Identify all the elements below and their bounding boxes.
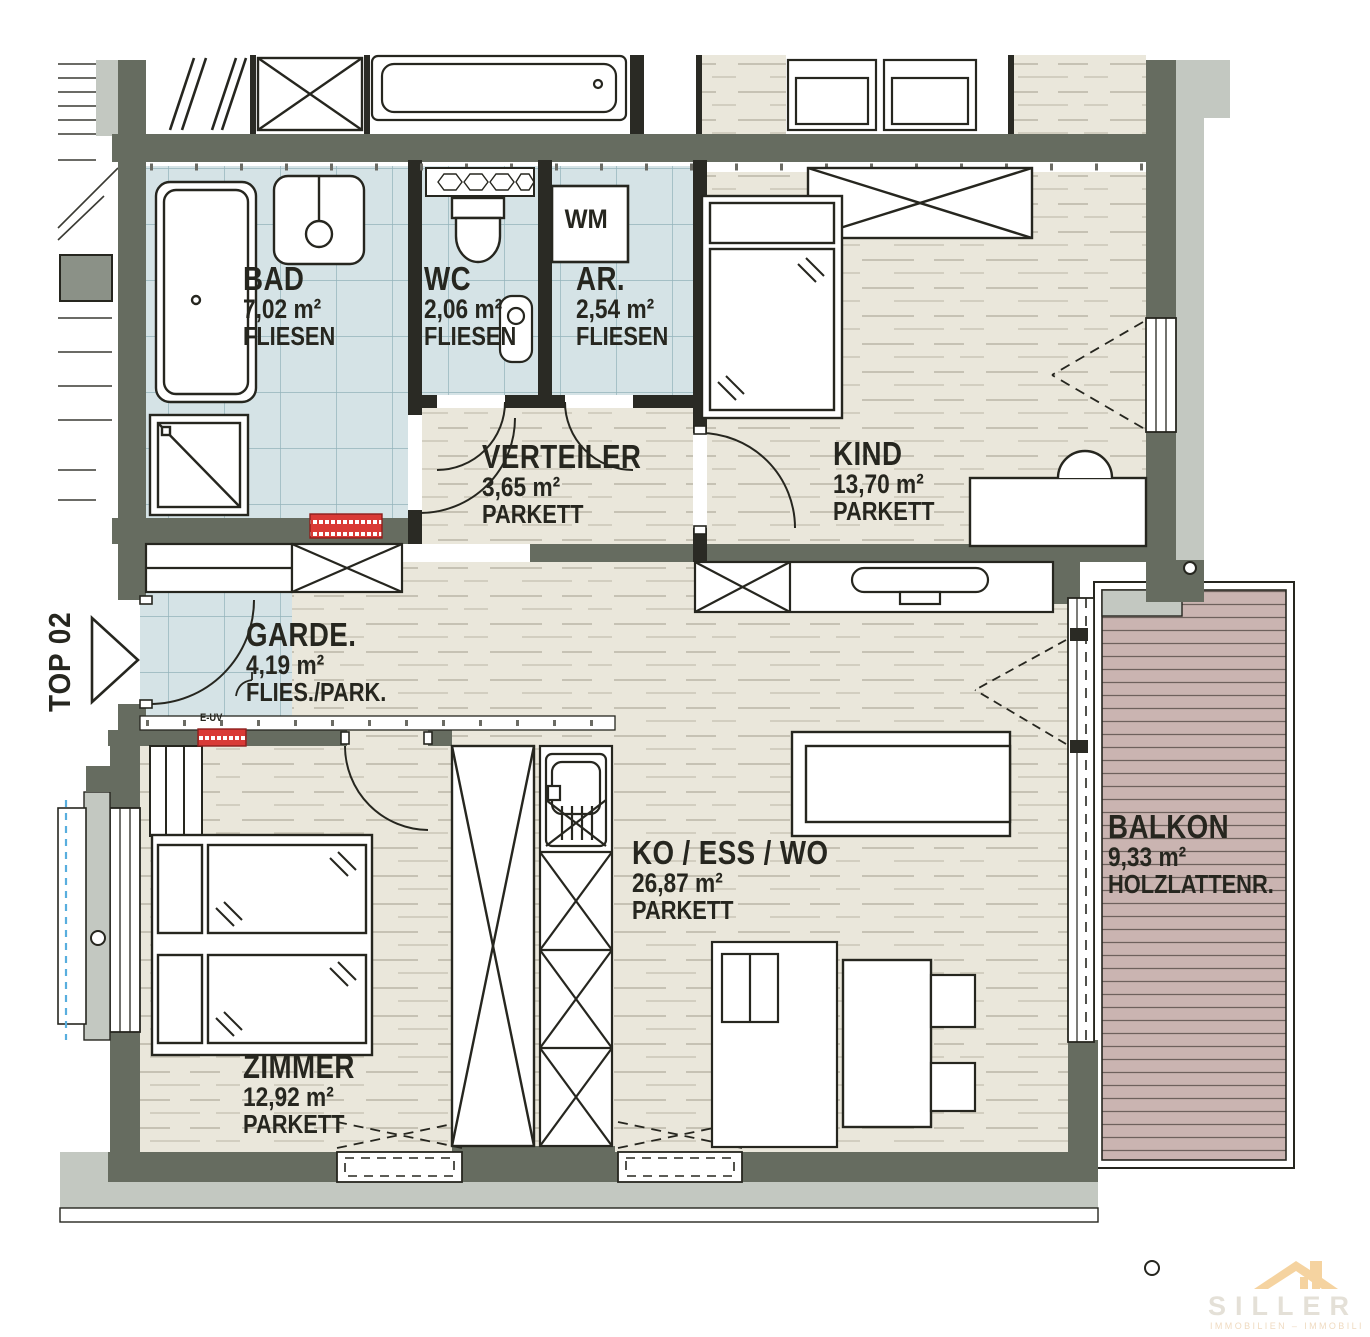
- double-bed-icon: [152, 835, 372, 1055]
- room-area: 26,87 m²: [632, 870, 828, 898]
- unit-label: TOP 02: [42, 611, 78, 712]
- room-name: BAD: [243, 262, 335, 296]
- room-label-zimmer: ZIMMER 12,92 m² PARKETT: [243, 1050, 355, 1138]
- room-name: KO / ESS / WO: [632, 836, 828, 870]
- survey-point: [1184, 562, 1196, 574]
- room-name: ZIMMER: [243, 1050, 355, 1084]
- room-label-wc: WC 2,06 m² FLIESEN: [424, 262, 516, 350]
- room-name: KIND: [833, 437, 935, 471]
- column-furniture: [452, 746, 612, 1146]
- sofa-icon: [792, 732, 1010, 836]
- garde-furniture: [146, 544, 402, 592]
- room-name: VERTEILER: [482, 440, 641, 474]
- room-floor: HOLZLATTENR.: [1108, 871, 1274, 898]
- room-label-kind: KIND 13,70 m² PARKETT: [833, 437, 935, 525]
- wc-shelf-hex: [426, 168, 534, 196]
- entrance-arrow: [92, 618, 138, 702]
- washing-machine-label: WM: [552, 204, 620, 235]
- hall-wardrobe-icon: [452, 746, 534, 1146]
- room-area: 4,19 m²: [246, 652, 386, 680]
- room-label-ar: AR. 2,54 m² FLIESEN: [576, 262, 668, 350]
- room-label-bad: BAD 7,02 m² FLIESEN: [243, 262, 335, 350]
- sink-icon: [274, 176, 364, 264]
- room-area: 9,33 m²: [1108, 844, 1274, 872]
- survey-point: [91, 931, 105, 945]
- room-area: 3,65 m²: [482, 474, 641, 502]
- exterior-left-block: [60, 255, 112, 301]
- electric-box-marker: [198, 729, 246, 746]
- kind-desk-icon: [970, 478, 1146, 546]
- room-floor: FLIESEN: [576, 323, 668, 350]
- room-floor: PARKETT: [632, 897, 828, 924]
- toilet-icon: [452, 198, 504, 262]
- room-label-garde: GARDE. 4,19 m² FLIES./PARK.: [246, 618, 386, 706]
- room-floor: FLIESEN: [424, 323, 516, 350]
- room-area: 7,02 m²: [243, 296, 335, 324]
- room-area: 2,06 m²: [424, 296, 516, 324]
- garde-shelf-icon: [146, 544, 292, 592]
- neighbour-wardrobe-icon: [258, 58, 362, 130]
- dining-table-icon: [843, 960, 931, 1127]
- sideboard-icon: [695, 562, 1053, 612]
- room-name: GARDE.: [246, 618, 386, 652]
- floorplan-drawing: [0, 0, 1370, 1337]
- floorplan-page: BAD 7,02 m² FLIESEN WC 2,06 m² FLIESEN A…: [0, 0, 1370, 1337]
- garde-wardrobe-icon: [292, 544, 402, 592]
- kind-bed-icon: [702, 196, 842, 418]
- electric-panel-label: E-UV: [200, 712, 222, 724]
- kitchen-unit-icon: [540, 746, 612, 1146]
- room-floor: PARKETT: [243, 1111, 355, 1138]
- shower-icon: [150, 415, 248, 515]
- electric-box-marker: [310, 514, 382, 538]
- room-floor: FLIESEN: [243, 323, 335, 350]
- room-floor: PARKETT: [482, 501, 641, 528]
- room-name: BALKON: [1108, 810, 1274, 844]
- room-floor: PARKETT: [833, 498, 935, 525]
- zimmer-closet-icon: [150, 746, 202, 836]
- neighbour-unit-strip: [146, 55, 1146, 134]
- room-label-wohn: KO / ESS / WO 26,87 m² PARKETT: [632, 836, 828, 924]
- walls-outer-band: [60, 1208, 1098, 1222]
- exterior-corner-block: [96, 60, 118, 136]
- dining-chair-icon: [931, 1063, 975, 1111]
- room-floor: FLIES./PARK.: [246, 679, 386, 706]
- bathtub-icon: [156, 182, 256, 402]
- neighbour-bathtub-icon: [372, 56, 626, 120]
- room-area: 12,92 m²: [243, 1084, 355, 1112]
- survey-point: [1145, 1261, 1159, 1275]
- room-label-balkon: BALKON 9,33 m² HOLZLATTENR.: [1108, 810, 1274, 898]
- room-area: 13,70 m²: [833, 471, 935, 499]
- tv-cabinet-icon: [712, 942, 837, 1147]
- dining-chair-icon: [931, 975, 975, 1027]
- room-name: AR.: [576, 262, 668, 296]
- room-label-verteiler: VERTEILER 3,65 m² PARKETT: [482, 440, 641, 528]
- room-name: WC: [424, 262, 516, 296]
- room-area: 2,54 m²: [576, 296, 668, 324]
